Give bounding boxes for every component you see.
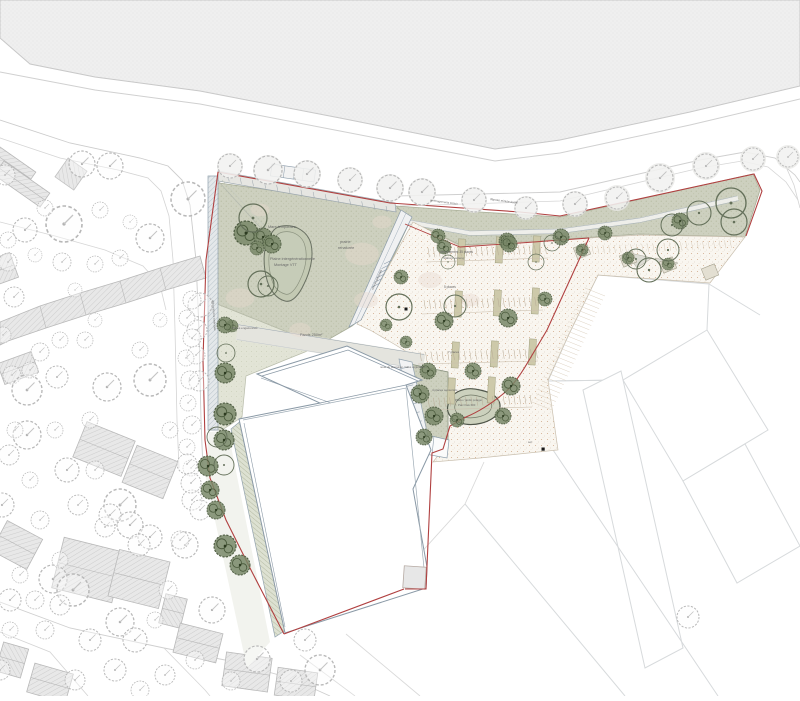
svg-text:Plaine intergénérationnelle: Plaine intergénérationnelle	[270, 257, 315, 261]
svg-text:sol: sol	[528, 440, 532, 444]
svg-text:Parc frais 600: Parc frais 600	[458, 403, 476, 407]
svg-text:7 places: 7 places	[448, 350, 460, 354]
svg-text:Stationt verteng: Stationt verteng	[443, 256, 464, 260]
svg-text:Plaine / jardin potager: Plaine / jardin potager	[455, 398, 482, 402]
svg-text:Parvis 250m²: Parvis 250m²	[300, 333, 323, 337]
svg-text:Pavés engazonnés: Pavés engazonnés	[232, 326, 258, 330]
svg-text:5 places: 5 places	[444, 285, 456, 289]
svg-text:Mare temporaire: Mare temporaire	[268, 225, 296, 229]
svg-text:renaturée: renaturée	[338, 246, 354, 250]
svg-text:prairie: prairie	[340, 240, 351, 244]
svg-text:noue de plantation / talus vég: noue de plantation / talus végétalisé	[380, 365, 425, 369]
svg-text:Montage VTT: Montage VTT	[274, 263, 298, 267]
svg-text:détachement 35 places: détachement 35 places	[440, 250, 473, 254]
svg-text:4 places sensoriels: 4 places sensoriels	[432, 388, 458, 392]
